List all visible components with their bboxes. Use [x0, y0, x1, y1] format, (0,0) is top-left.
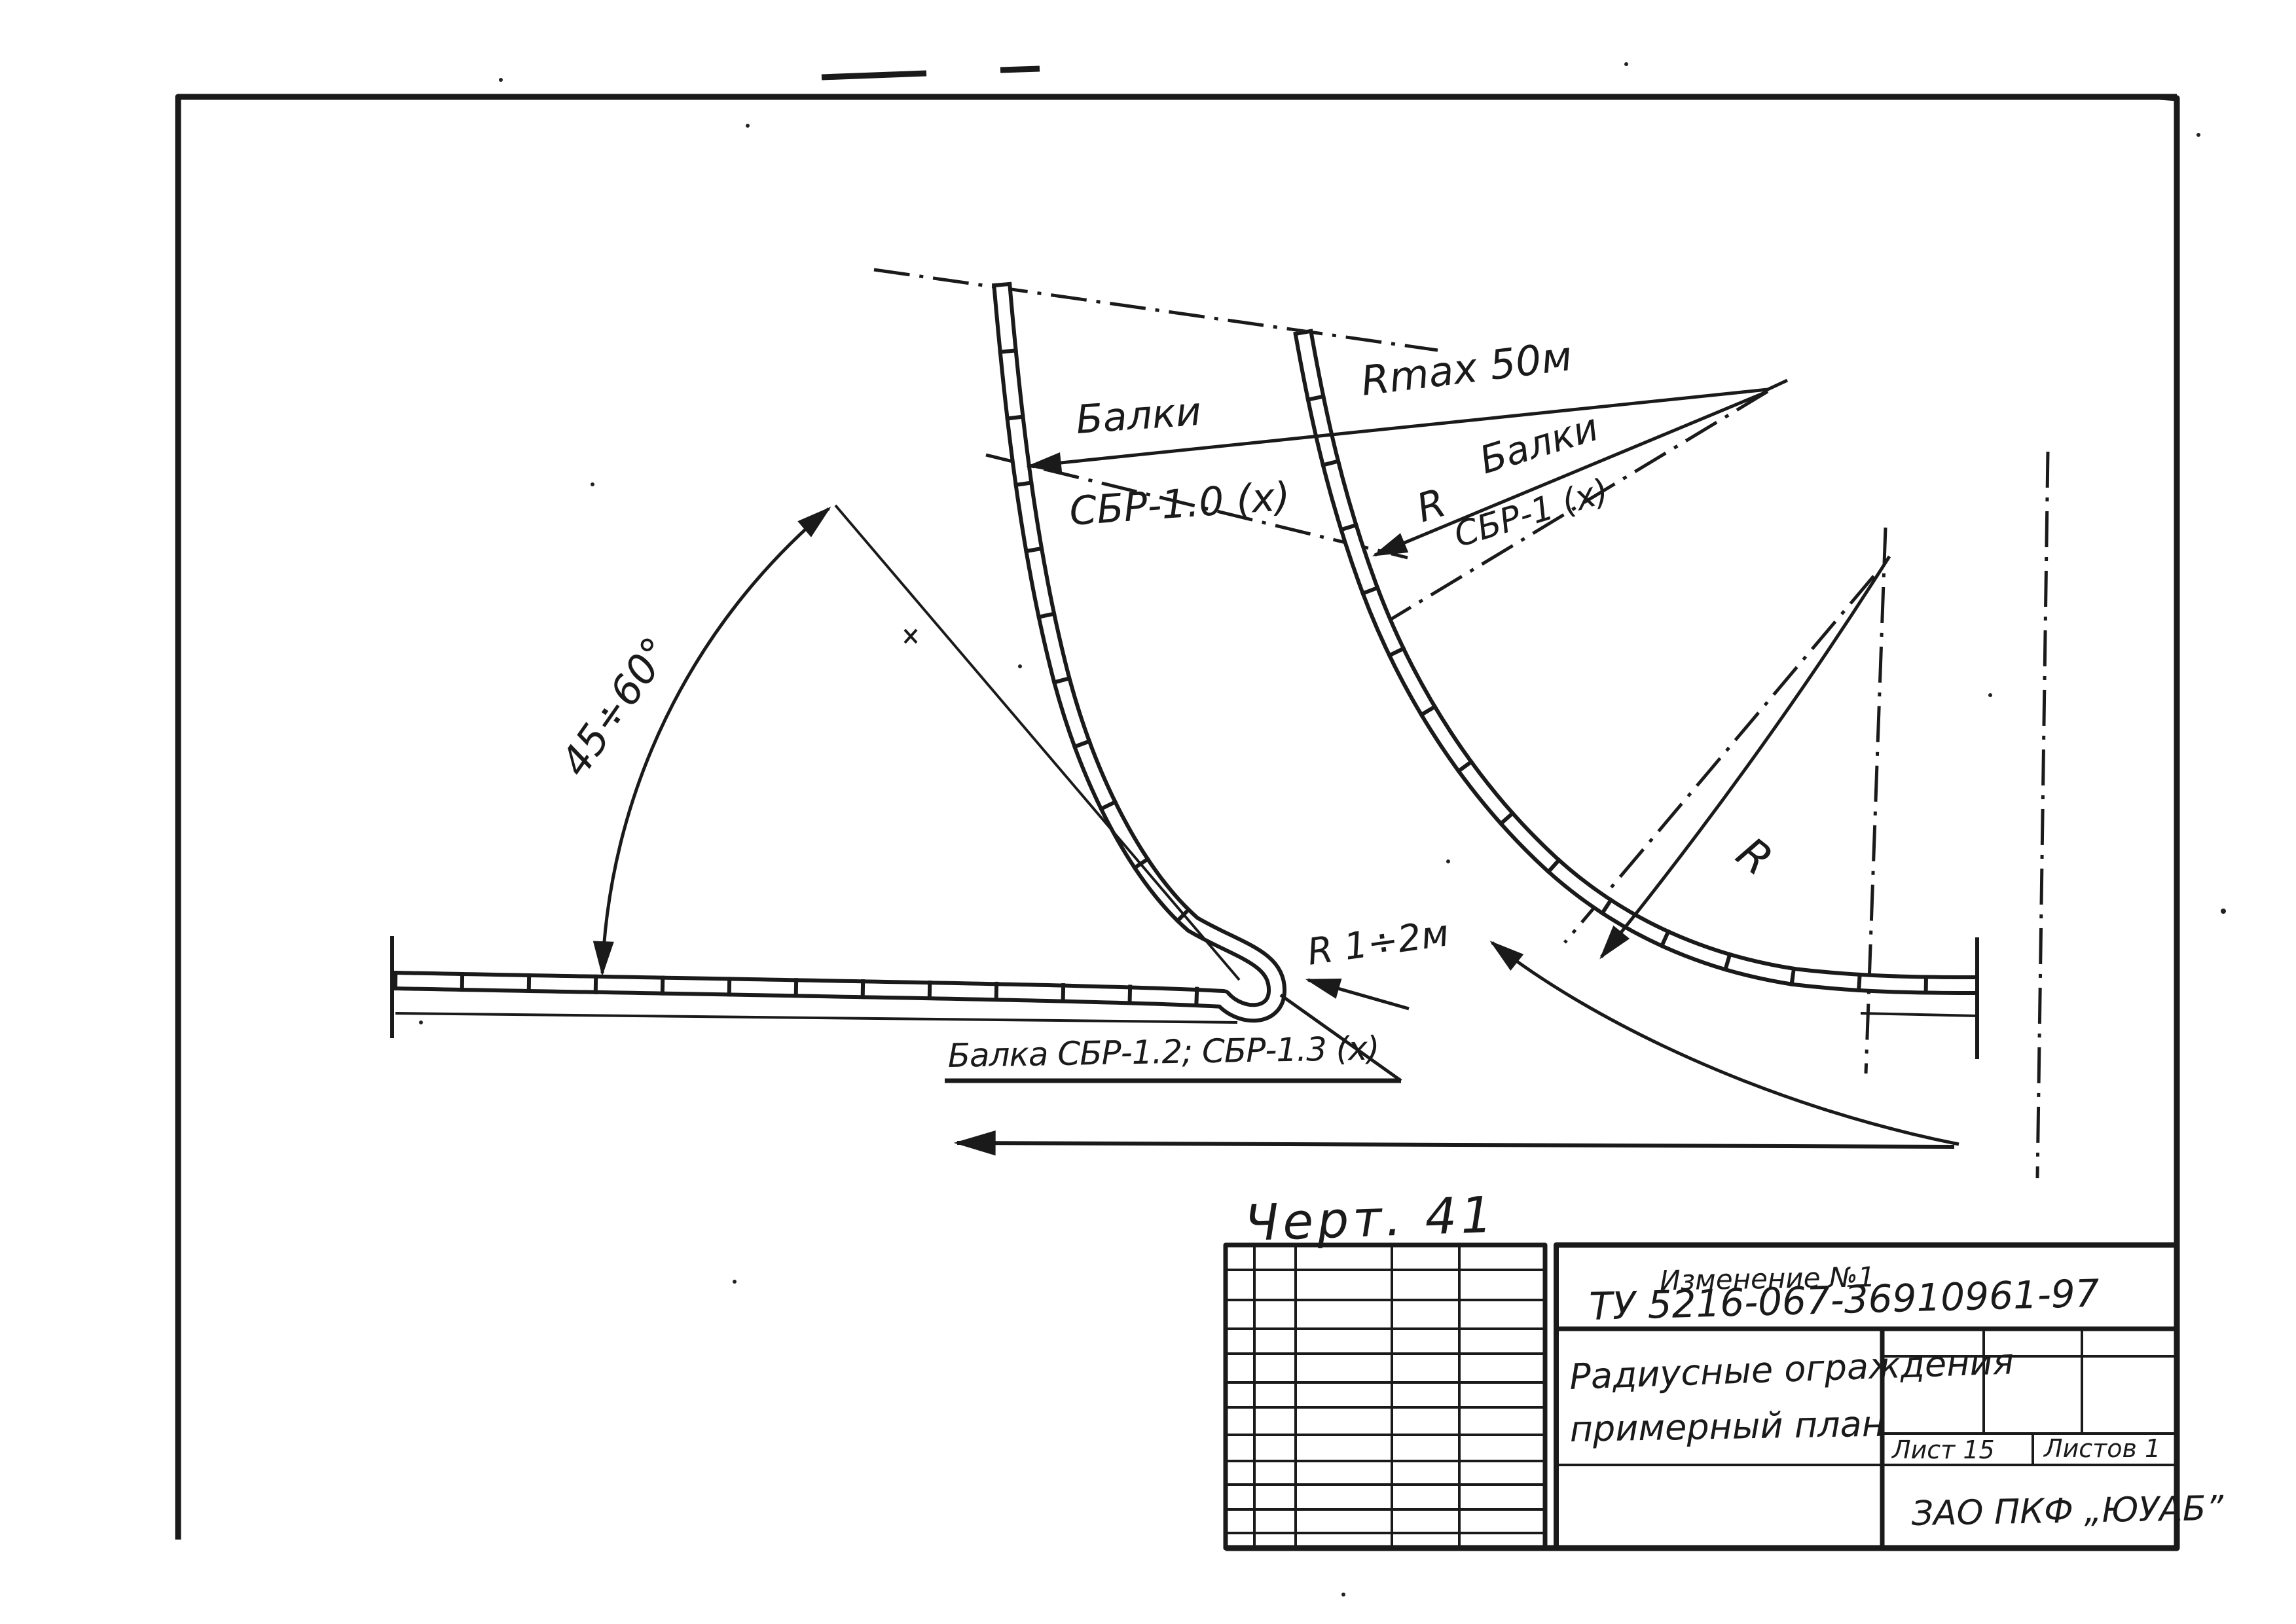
label-beams-top-2: СБР-1.0 (х)	[1068, 474, 1292, 535]
centerline-radius-right-a	[1565, 576, 1874, 943]
angle-arc	[602, 509, 829, 973]
hook-radius-leader	[1308, 980, 1409, 1009]
sheet-number: Лист 15	[1891, 1435, 1995, 1464]
figure-caption: Черт. 41	[1244, 1185, 1497, 1252]
label-beams-top-1: Балки	[1074, 389, 1203, 443]
right-guardrail-lower-edge	[1861, 1013, 1978, 1016]
drawing-title-line2: примерный план	[1569, 1403, 1885, 1450]
centerline-far-right	[2037, 452, 2048, 1178]
company-name: ЗАО ПКФ „ЮУАБ”	[1911, 1489, 2225, 1534]
traffic-arrow-straight	[957, 1143, 1954, 1147]
title-block: Изменение №1 ТУ 5216-067-36910961-97 Рад…	[1556, 1245, 2225, 1548]
sheets-total: Листов 1	[2043, 1434, 2160, 1463]
angle-dimension	[602, 505, 1239, 980]
label-r-beams-code: СБР-1 (х)	[1449, 471, 1613, 555]
revision-table-columns	[1254, 1245, 1459, 1548]
label-r-beams-r: R	[1412, 480, 1451, 532]
centerline-top-left	[874, 270, 1438, 350]
left-guardrail-segments	[1002, 283, 1193, 924]
angle-ray-x-mark	[905, 630, 917, 643]
drawing-sheet: Балки СБР-1.0 (х) Rmax 50м R Балки СБР-1…	[0, 0, 2296, 1624]
label-angle-range: 45÷60°	[551, 628, 680, 785]
revision-table	[1226, 1245, 1545, 1548]
revision-table-outline	[1226, 1245, 1545, 1548]
drawing-title-line1: Радиусные ограждения	[1569, 1341, 2014, 1398]
radius-arrow	[1601, 556, 1889, 957]
annotation-labels: Балки СБР-1.0 (х) Rmax 50м R Балки СБР-1…	[551, 332, 1781, 1252]
traffic-arrow-curved	[1492, 943, 1959, 1144]
label-hook-radius: R 1÷2м	[1305, 912, 1451, 974]
left-guardrail-lower-edge	[395, 1013, 1237, 1022]
label-beams-bottom: Балка СБР-1.2; СБР-1.3 (х)	[947, 1030, 1379, 1075]
drawing-canvas: Балки СБР-1.0 (х) Rmax 50м R Балки СБР-1…	[0, 0, 2296, 1624]
label-rmax: Rmax 50м	[1358, 332, 1575, 405]
revision-table-rows	[1226, 1270, 1545, 1533]
label-radius-r: R	[1727, 827, 1782, 886]
